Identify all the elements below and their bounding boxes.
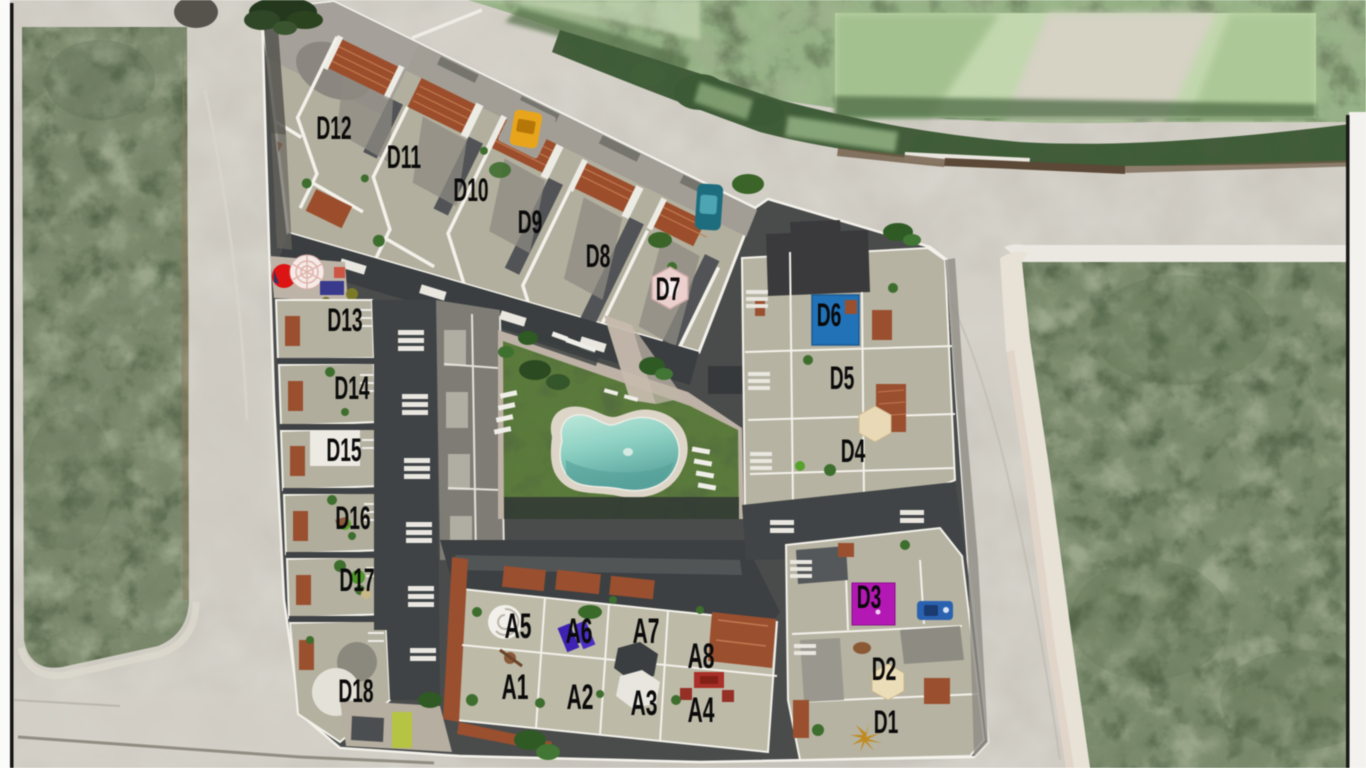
svg-text:A5: A5 <box>505 608 532 647</box>
svg-text:D13: D13 <box>327 302 362 338</box>
svg-text:D6: D6 <box>817 297 842 333</box>
svg-text:D17: D17 <box>339 562 374 598</box>
svg-text:A6: A6 <box>566 613 593 652</box>
svg-text:D16: D16 <box>335 500 370 536</box>
svg-text:D12: D12 <box>316 110 351 146</box>
svg-text:A2: A2 <box>567 679 594 718</box>
svg-text:D3: D3 <box>857 579 882 615</box>
svg-text:D8: D8 <box>586 238 611 274</box>
svg-text:D1: D1 <box>874 704 899 740</box>
svg-text:A4: A4 <box>688 692 715 731</box>
svg-text:D2: D2 <box>872 651 897 687</box>
svg-text:D14: D14 <box>334 370 369 406</box>
svg-text:D10: D10 <box>453 172 488 208</box>
svg-text:D11: D11 <box>387 139 421 175</box>
svg-text:A3: A3 <box>631 685 658 724</box>
svg-text:D4: D4 <box>841 433 866 469</box>
svg-text:D7: D7 <box>656 271 681 307</box>
svg-text:D5: D5 <box>830 360 855 396</box>
svg-text:D9: D9 <box>518 204 543 240</box>
svg-text:A1: A1 <box>502 669 529 708</box>
svg-text:A8: A8 <box>688 638 715 677</box>
svg-text:D18: D18 <box>338 673 373 709</box>
svg-text:A7: A7 <box>633 613 660 652</box>
svg-text:D15: D15 <box>326 432 361 468</box>
